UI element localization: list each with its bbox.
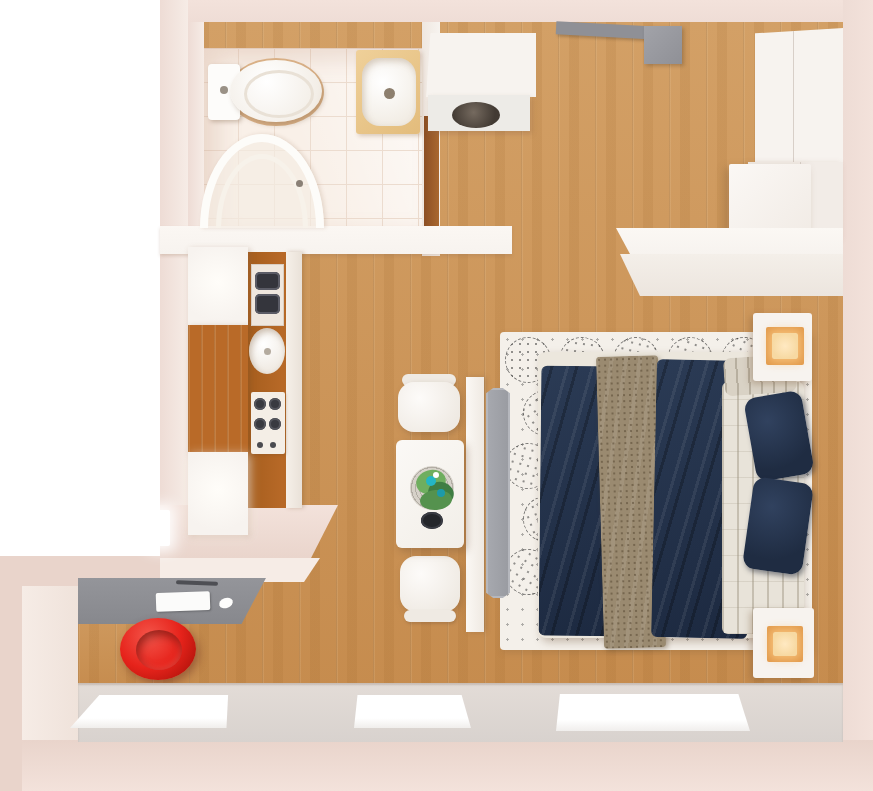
fridge-cabinet — [729, 164, 811, 238]
stove-burner — [269, 398, 281, 410]
lamp-top-glow — [772, 333, 798, 359]
stove-burner — [254, 398, 266, 410]
red-chair-seat — [136, 630, 182, 670]
sideboard-top — [616, 228, 843, 254]
tv-panel — [466, 377, 484, 632]
toilet-seat-rim — [244, 70, 314, 118]
wardrobe-upper — [755, 28, 843, 162]
teal-flower — [437, 489, 445, 497]
kitchen-counter-edge — [286, 252, 302, 508]
washing-machine-drum — [452, 102, 500, 128]
kitchen-sink-drain — [264, 348, 271, 355]
stove-burner — [269, 418, 281, 430]
pillow-bottom — [742, 476, 814, 575]
black-plate — [421, 512, 443, 529]
entrance-door-frame — [644, 26, 682, 64]
stove-knob — [257, 442, 263, 448]
dish-rack-plate — [255, 294, 280, 314]
floor-plan-scene — [0, 0, 873, 791]
wall-left-upper — [160, 0, 188, 514]
window-pane-2 — [354, 695, 471, 728]
toilet-flush-button — [220, 86, 228, 94]
shower-door-handle — [296, 180, 303, 187]
lamp-bottom-glow — [773, 632, 797, 656]
dining-chair-top-seat — [398, 382, 460, 432]
wall-left-lower — [0, 556, 22, 791]
paper-sheet — [156, 591, 211, 612]
dish-rack-plate — [255, 272, 280, 290]
wall-bottom — [20, 740, 873, 791]
stove-burner — [254, 418, 266, 430]
dining-chair-bottom-seat — [400, 556, 460, 612]
wall-nook-inner-face — [22, 586, 80, 740]
sideboard-front — [620, 254, 843, 296]
kitchen-cabinet-wood — [188, 325, 248, 452]
bathroom-door — [424, 116, 439, 228]
dining-chair-bottom-back — [404, 610, 456, 622]
bathroom-sink-faucet — [384, 88, 395, 99]
window-pane-3 — [556, 694, 750, 731]
stove-knob — [270, 442, 276, 448]
wall-right — [843, 0, 873, 791]
tv-screen — [486, 388, 510, 598]
kitchen-cabinet-top — [188, 247, 248, 325]
wall-light — [152, 510, 170, 546]
white-flower — [433, 472, 439, 478]
partition-wall — [160, 505, 338, 561]
kitchen-cabinet-bottom — [188, 452, 248, 535]
washer-cabinet-top — [426, 33, 536, 97]
